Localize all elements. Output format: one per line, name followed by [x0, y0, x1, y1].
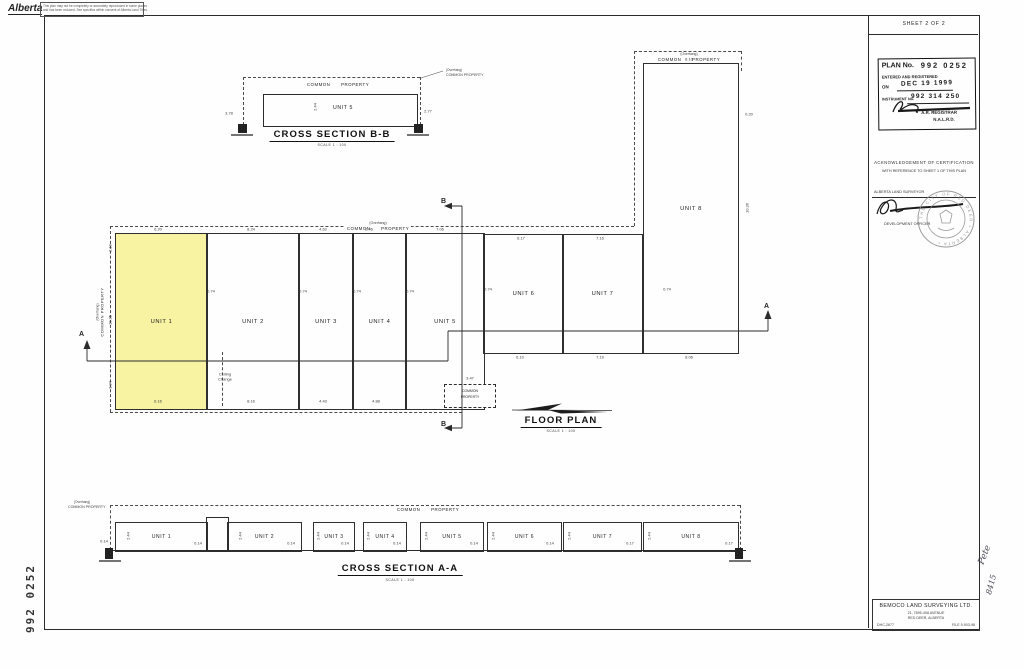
dimension-label: 2.44 — [316, 532, 321, 540]
instrument-label: INSTRUMENT No. — [882, 97, 914, 101]
certification-line-2: WITH REFERENCE TO SHEET 1 OF THIS PLAN — [882, 169, 966, 173]
company-name: BEMOCO LAND SURVEYING LTD. — [880, 603, 973, 609]
surveyor-signature-line — [872, 197, 976, 198]
handwritten-note-2: 8415 — [984, 574, 998, 596]
file-ref: FILE 9-903-98 — [952, 623, 975, 627]
sheet-label: SHEET 2 OF 2 — [903, 21, 946, 27]
dimension-label: 8.06 — [685, 355, 693, 360]
unit-label: UNIT 1 — [151, 319, 173, 325]
aa-overhang-note-2: COMMON PROPERTY — [68, 505, 105, 509]
bb-overhang-left — [243, 77, 244, 125]
dimension-label: 0.14 — [100, 539, 108, 544]
unit-label: UNIT 6 — [513, 291, 535, 297]
dimension-label: 6.16 — [154, 399, 162, 404]
section-aa-unit-7: UNIT 7 — [563, 522, 642, 552]
surveyor-company-block: BEMOCO LAND SURVEYING LTD. 21, 7895-49A … — [872, 599, 980, 631]
bb-scale: SCALE 1 : 100 — [318, 143, 347, 147]
dimension-label: 0.14 — [287, 541, 295, 546]
titleblock-divider — [868, 15, 869, 628]
bb-overhang-note-1: (Overhang) — [446, 68, 462, 72]
date-stamp: DEC 19 1999 — [901, 79, 953, 87]
fp-common-property-box: COMMON PROPERTY — [444, 384, 496, 408]
dimension-label: 0.17 — [725, 541, 733, 546]
fp-common-property-top: COMMON PROPERTY — [345, 226, 411, 231]
surveyor-label: ALBERTA LAND SURVEYOR — [874, 190, 924, 194]
dimension-label: 0.74 — [663, 287, 671, 292]
bb-unit5-label: UNIT 5 — [333, 105, 353, 111]
dimension-label: 8.24 — [247, 227, 255, 232]
unit-label: UNIT 6 — [515, 534, 534, 540]
section-marker-a-left: A — [79, 331, 84, 338]
floorplan-unit-7: UNIT 7 — [562, 234, 643, 354]
section-marker-a-right: A — [764, 303, 769, 310]
dimension-label: 0.74 — [299, 289, 307, 294]
registrar-office: N.A.L.R.D. — [933, 117, 955, 122]
company-address-1: 21, 7895-49A AVENUE — [908, 611, 945, 615]
aa-parapet-step — [206, 517, 229, 552]
dimension-label: 2.46 — [365, 227, 373, 232]
unit-label: UNIT 3 — [315, 319, 337, 325]
company-address-2: RED DEER, ALBERTA — [908, 616, 944, 620]
dimension-label: 7.19 — [596, 355, 604, 360]
dimension-label: 0.14 — [393, 541, 401, 546]
disclaimer-line-2: and has been reduced. See specifics with… — [43, 8, 141, 12]
plan-no-value: 992 0252 — [921, 61, 968, 70]
dimension-label: 2.44 — [491, 532, 496, 540]
unit-label: UNIT 2 — [255, 534, 274, 540]
bb-overhang-note-2: COMMON PROPERTY — [446, 73, 483, 77]
registration-stamp: PLAN No. 992 0252 ENTERED AND REGISTERED… — [878, 57, 977, 130]
fp-common-box-line1: COMMON — [462, 389, 478, 393]
dimension-label: 2.77 — [424, 109, 432, 114]
on-label: ON — [882, 84, 889, 89]
floorplan-unit-4: UNIT 4 — [352, 233, 407, 410]
unit-label: UNIT 7 — [593, 534, 612, 540]
dimension-label: 0.74 — [207, 289, 215, 294]
dimension-label: 6.17 — [517, 236, 525, 241]
fp-overhang-left-label: (Overhang) COMMON PROPERTY — [96, 287, 105, 336]
dimension-label: 4.88 — [372, 399, 380, 404]
floorplan-unit-3: UNIT 3 — [298, 233, 354, 410]
dimension-label: 7.16 — [596, 236, 604, 241]
floorplan-unit-8: UNIT 8 — [643, 63, 739, 354]
dimension-label: 0.74 — [484, 287, 492, 292]
certification-line-1: ACKNOWLEDGEMENT OF CERTIFICATION — [874, 160, 974, 165]
dimension-label: 10.36 — [745, 203, 750, 213]
dimension-label: 2.44 — [126, 532, 131, 540]
dimension-label: 3.47 — [466, 376, 474, 381]
unit-label: UNIT 3 — [324, 534, 343, 540]
dimension-label: 8.16 — [247, 399, 255, 404]
drawing-ref: DHC-2677 — [877, 623, 894, 627]
registrar-title: A.R. REGISTRAR — [921, 110, 957, 115]
entered-registered-label: ENTERED AND REGISTERED — [882, 74, 938, 80]
fp-title: FLOOR PLAN — [521, 415, 602, 428]
fp-overhang-left-line2: COMMON PROPERTY — [100, 287, 105, 336]
section-marker-b-top: B — [441, 198, 446, 205]
dimension-label: 0.74 — [406, 289, 414, 294]
bb-overhang-right — [420, 77, 421, 125]
sheet-cell-line — [868, 34, 978, 35]
dimension-label: 2.44 — [647, 532, 652, 540]
dimension-label: 7.06 — [436, 227, 444, 232]
aa-scale: SCALE 1 : 100 — [386, 578, 415, 582]
fp-scale: SCALE 1 : 100 — [547, 429, 576, 433]
disclaimer-box: This plan may not be completely or accur… — [40, 2, 144, 17]
dimension-label: 0.14 — [470, 541, 478, 546]
dimension-label: 4.62 — [319, 227, 327, 232]
development-officer-label: DEVELOPMENT OFFICER — [884, 222, 930, 226]
aa-overhang-right — [740, 505, 741, 550]
alberta-logo: Alberta — [8, 3, 42, 15]
unit-label: UNIT 8 — [681, 534, 700, 540]
dimension-label: 3.78 — [225, 111, 233, 116]
unit-label: UNIT 7 — [592, 291, 614, 297]
section-marker-b-bottom: B — [441, 421, 446, 428]
aa-common-property-label: COMMON PROPERTY — [395, 507, 461, 512]
section-aa-unit-6: UNIT 6 — [487, 522, 562, 552]
bb-common-property-label: COMMON PROPERTY — [307, 82, 369, 87]
unit-label: UNIT 5 — [442, 534, 461, 540]
floorplan-unit-1: UNIT 1 — [115, 233, 208, 410]
unit-label: UNIT 5 — [434, 319, 456, 325]
dimension-label: 10.35 — [108, 315, 113, 325]
fp-overhang-top-note: (Overhang) — [369, 221, 386, 225]
bb-title: CROSS SECTION B-B — [270, 129, 395, 142]
condominium-plan-sheet: Alberta This plan may not be completely … — [0, 0, 1024, 669]
aa-overhang-left — [110, 505, 111, 550]
fp-common-box-line2: PROPERTY — [461, 395, 480, 399]
unit-label: UNIT 4 — [375, 534, 394, 540]
section-aa-unit-5: UNIT 5 — [420, 522, 484, 552]
floorplan-unit-2: UNIT 2 — [206, 233, 300, 410]
aa-title: CROSS SECTION A-A — [338, 563, 463, 576]
aa-overhang-top — [110, 505, 740, 506]
dimension-label: 2.44 — [313, 103, 318, 111]
fp-overhang-unit8-left — [634, 51, 635, 226]
dimension-label: 6.10 — [516, 355, 524, 360]
dimension-label: 0.74 — [353, 289, 361, 294]
fp-overhang-unit8-note: (Overhang) — [680, 52, 697, 56]
aa-overhang-note-1: (Overhang) — [74, 500, 90, 504]
section-aa-unit-8: UNIT 8 — [643, 522, 739, 552]
unit-label: UNIT 8 — [680, 206, 702, 212]
dimension-label: 2.44 — [366, 532, 371, 540]
instrument-value: 992 314 250 — [911, 93, 960, 100]
dimension-label: 2.44 — [567, 532, 572, 540]
dimension-label: 8.10 — [685, 57, 693, 62]
dimension-label: 3.04 — [108, 381, 113, 389]
unit-label: UNIT 2 — [242, 319, 264, 325]
dimension-label: 0.20 — [745, 112, 753, 117]
plan-no-label: PLAN No. — [882, 62, 914, 69]
dimension-label: Change — [218, 377, 232, 382]
unit-label: UNIT 1 — [152, 534, 171, 540]
fp-overhang-unit8-right — [741, 51, 742, 71]
dimension-label: 2.19 — [108, 244, 113, 252]
dimension-label: 6.20 — [154, 227, 162, 232]
unit-label: UNIT 4 — [369, 319, 391, 325]
plan-number-margin: 992 0252 — [24, 564, 37, 633]
dimension-label: 0.14 — [341, 541, 349, 546]
stamp-rule-2 — [907, 103, 969, 105]
stamp-rule-1 — [897, 90, 953, 92]
fp-overhang-bottom — [110, 412, 462, 413]
dimension-label: 4.43 — [319, 399, 327, 404]
floorplan-unit-6: UNIT 6 — [483, 234, 564, 354]
dimension-label: 0.14 — [194, 541, 202, 546]
bb-overhang-top — [243, 77, 420, 78]
dimension-label: 2.44 — [238, 532, 243, 540]
dimension-label: 2.44 — [424, 532, 429, 540]
dimension-label: 0.17 — [626, 541, 634, 546]
dimension-label: 0.14 — [546, 541, 554, 546]
